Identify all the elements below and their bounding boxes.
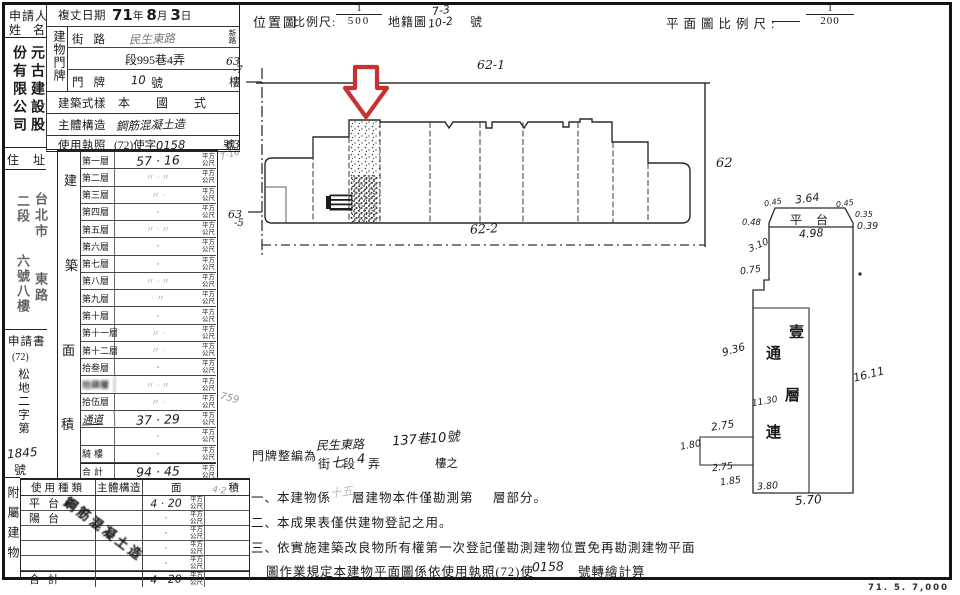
- structure-row: 主體構造 鋼筋混凝土造: [47, 114, 239, 136]
- plan-char-1: 壹: [789, 321, 804, 342]
- floor-row: ·平方公尺: [80, 428, 216, 445]
- unit-label: 平方公尺: [201, 188, 216, 202]
- floor-row: 拾肆層〃 · 〃平方公尺: [80, 376, 216, 393]
- floor-row: 第五層〃 · 〃平方公尺: [80, 221, 216, 238]
- floor-row: 第十二層〃 ·平方公尺: [80, 342, 216, 359]
- floor-row: 第四層·平方公尺: [80, 204, 216, 221]
- residence-label: 住址: [7, 151, 59, 168]
- divider: [3, 477, 20, 478]
- passage-label: 通道: [80, 410, 116, 427]
- floor-value: 〃 ·: [115, 189, 201, 201]
- divider: [4, 37, 46, 38]
- annex-structure-header: 主體構造: [96, 480, 143, 495]
- address-block-label: 建物門牌: [51, 30, 68, 88]
- divider: [4, 169, 46, 170]
- floor-of-word: 樓之: [435, 455, 458, 471]
- unit-label: 平方公尺: [201, 309, 216, 323]
- scale-label: 比例尺:: [293, 13, 336, 30]
- application-doc-label: 申請書: [8, 333, 46, 349]
- unit-label: 平方公尺: [201, 412, 216, 426]
- unit-label: 平方公尺: [201, 343, 216, 357]
- floor-value: 〃 ·: [115, 327, 201, 339]
- applicant-name-column-right: 元古建設股: [26, 45, 46, 157]
- address-label-cell: 建物門牌: [47, 27, 68, 91]
- street-side-note: 新路: [227, 29, 238, 47]
- floor-value: 〃 · 〃: [115, 379, 201, 391]
- street-value: 民生東路: [129, 30, 176, 48]
- day-suffix: 日: [181, 8, 192, 23]
- door-number: 10: [131, 72, 146, 87]
- annex-area: ·: [143, 528, 189, 538]
- note1-part-c: 層部分。: [493, 487, 547, 506]
- applicant-name-column-left: 份有限公司: [8, 45, 28, 157]
- floor-label: [80, 428, 115, 444]
- dim-498: 4.98: [799, 226, 824, 241]
- floor-label: 拾肆層: [80, 376, 115, 392]
- floor-label: 第十層: [80, 307, 115, 323]
- floor-label: 第三層: [80, 187, 115, 203]
- residence-address-right: 台北市 東路: [31, 192, 50, 322]
- unit-label: 平方公尺: [189, 511, 204, 525]
- divider: [3, 329, 47, 330]
- building-address-block: 建物門牌 街路 民生東路 新路 段995巷4弄 門牌 10 號 樓: [47, 27, 239, 92]
- floor-row: 第六層·平方公尺: [80, 238, 216, 255]
- plan-scale-label: 平面圖比例尺:: [666, 13, 779, 32]
- floor-label: 第七層: [80, 256, 115, 272]
- floor-value: ·: [115, 311, 201, 321]
- annex-area: ·: [143, 513, 189, 523]
- note3-continued: 圖作業規定本建物平面圖係依使用執照(72)使: [266, 561, 534, 580]
- floor-label: 第九層: [80, 290, 115, 306]
- building-survey-document: 申請人 姓名 元古建設股 份有限公司 住址 台北市 東路 二段 六號八樓 申請書…: [0, 0, 960, 595]
- floor-value: ·: [115, 259, 201, 269]
- area-label-char2: 築: [65, 255, 78, 274]
- dim-048: 0.48: [742, 218, 761, 228]
- plan-scale-denominator: 200: [820, 15, 840, 27]
- month-suffix: 月: [157, 8, 168, 23]
- plan-char-2: 通: [766, 342, 781, 363]
- alley-word: 弄: [368, 455, 380, 472]
- annex-margin-scribble: 4·2: [211, 485, 227, 497]
- note1-part-a: 本建物係: [277, 487, 331, 506]
- unit-label: 平方公尺: [189, 526, 204, 540]
- dim-039: 0.39: [857, 221, 878, 232]
- application-doc-number: 1845: [6, 445, 38, 462]
- floor-value: 〃 · 〃: [115, 275, 201, 287]
- unit-label: 平方公尺: [201, 170, 216, 184]
- floor-row: 第一層57 · 16平方公尺: [80, 152, 216, 169]
- cadastre-unit: 號: [470, 13, 482, 30]
- floor-value: · 〃: [115, 292, 201, 304]
- application-doc-suffix: 號: [14, 461, 26, 478]
- plan-scale-fraction: 1 200: [806, 2, 854, 27]
- floor-row: 第十一層〃 ·平方公尺: [80, 325, 216, 342]
- floor-row: 騎樓·平方公尺: [80, 446, 216, 463]
- survey-date-month: 8: [146, 6, 156, 24]
- annex-area-header: 面 積: [143, 480, 249, 495]
- unit-label: 平方公尺: [201, 257, 216, 271]
- note3-tail: 號轉繪計算: [578, 561, 646, 580]
- note2-text: 本成果表僅供建物登記之用。: [277, 512, 453, 531]
- unit-label: 平方公尺: [201, 395, 216, 409]
- floor-value: 〃 ·: [115, 344, 201, 356]
- floor-label: 第一層: [80, 152, 115, 168]
- print-code: 71. 5. 7,000: [868, 583, 949, 593]
- unit-label: 平方公尺: [201, 360, 216, 374]
- residence-address-left: 二段 六號八樓: [13, 194, 32, 328]
- area-label-char1: 建: [64, 170, 77, 189]
- note2-number: 二、: [251, 512, 278, 531]
- unit-label: 平方公尺: [201, 239, 216, 253]
- application-doc-series: 松地二字第: [15, 368, 31, 450]
- street-word: 街: [318, 455, 330, 472]
- highlighted-unit-dense-fill: [351, 175, 378, 223]
- street-row: 街路 民生東路 新路: [67, 27, 239, 48]
- door-row: 門牌 10 號 樓: [67, 70, 239, 91]
- floor-label: 第六層: [80, 238, 115, 254]
- dim-035: 0.35: [855, 210, 873, 219]
- note3-license-number-hand: 0158: [532, 558, 564, 574]
- lane-value: 段995巷4弄: [125, 51, 185, 68]
- annex-box-end: [326, 196, 331, 209]
- red-arrow-icon: [345, 67, 387, 117]
- plan-dot: [858, 272, 861, 275]
- floor-label: 第五層: [80, 221, 115, 237]
- survey-date-day: 3: [170, 6, 180, 24]
- alley-number-hand: 4: [357, 452, 366, 467]
- floor-label: 第十一層: [80, 325, 115, 341]
- renumbered-address-label: 門牌整編為: [252, 447, 317, 464]
- floor-value: 〃 ·: [115, 396, 201, 408]
- divider: [4, 147, 47, 148]
- parcel-label-62: 62: [716, 156, 733, 171]
- area-label-strip: 建 築 面 積: [58, 152, 81, 479]
- style-label: 建築式樣: [58, 95, 106, 111]
- passage-value: 37 · 29: [115, 410, 201, 428]
- unit-label: 平方公尺: [201, 326, 216, 340]
- floor-row: 拾叁層·平方公尺: [80, 359, 216, 376]
- floor-value: 〃 · 〃: [115, 223, 201, 235]
- floor-value: ·: [115, 241, 201, 251]
- lane-row: 段995巷4弄: [67, 48, 239, 69]
- annex-row: 平台4 · 20平方公尺: [21, 496, 249, 511]
- dim-570: 5.70: [795, 492, 823, 508]
- note3-text: 依實施建築改良物所有權第一次登記僅勘測建物位置免再勘測建物平面: [277, 537, 696, 556]
- style-row: 建築式樣 本國式: [47, 92, 239, 114]
- annex-area: ·: [143, 558, 189, 568]
- annex-total-value: 4 · 20: [143, 572, 189, 587]
- platform-label: 平台: [790, 211, 842, 228]
- scale-numerator: 1: [356, 2, 362, 14]
- arcade-label: 騎樓: [80, 446, 115, 462]
- floor-row: 第九層· 〃平方公尺: [80, 290, 216, 307]
- survey-date-row: 複丈日期 71 年 8 月 3 日: [47, 4, 239, 27]
- door-label: 門牌: [72, 74, 115, 90]
- parcel-label-63-5b: -5: [234, 218, 244, 229]
- application-doc-paren: (72): [12, 352, 29, 363]
- floor-area-table: 建 築 面 積 第一層57 · 16平方公尺 第二層〃 · 〃平方公尺 第三層〃…: [57, 150, 218, 480]
- location-map-title: 位置圖: [253, 12, 298, 31]
- floor-label: 第二層: [80, 169, 115, 185]
- plan-scale-numerator: 1: [827, 2, 833, 14]
- annex-row: 陽台·平方公尺: [21, 511, 249, 526]
- floor-value: ·: [115, 362, 201, 372]
- note1-part-b: 層建物本件僅勘測第: [352, 487, 474, 506]
- annex-hatched-box: [330, 195, 352, 210]
- unit-label: 平方公尺: [189, 556, 204, 570]
- structure-value: 鋼筋混凝土造: [116, 115, 186, 133]
- floor-row: 第七層·平方公尺: [80, 256, 216, 273]
- survey-date-label: 複丈日期: [58, 7, 106, 23]
- unit-label: 平方公尺: [189, 572, 204, 586]
- parcel-label-62-1: 62-1: [477, 57, 505, 72]
- unit-label: 平方公尺: [189, 496, 204, 510]
- parcel-label-63-7b: -7: [233, 65, 243, 76]
- floor-value: 〃 · 〃: [115, 171, 201, 183]
- year-suffix: 年: [133, 8, 144, 23]
- style-value: 本國式: [118, 94, 232, 111]
- annex-area: ·: [143, 543, 189, 553]
- unit-label: 平方公尺: [189, 541, 204, 555]
- area-label-char4: 積: [61, 414, 74, 433]
- floor-row: 通道37 · 29平方公尺: [80, 411, 216, 428]
- structure-label: 主體構造: [58, 117, 106, 133]
- building-info-form: 複丈日期 71 年 8 月 3 日 建物門牌 街路 民生東路 新路 段995巷4…: [46, 4, 240, 152]
- floor-row: 第三層〃 ·平方公尺: [80, 187, 216, 204]
- dim-380: 3.80: [757, 480, 779, 492]
- unit-label: 平方公尺: [201, 222, 216, 236]
- floor-value: ·: [115, 207, 201, 217]
- dash-line: [772, 21, 800, 22]
- annex-total-row: 合計4 · 20平方公尺: [21, 571, 249, 586]
- unit-label: 平方公尺: [201, 205, 216, 219]
- floor-label: 拾叁層: [80, 359, 115, 375]
- section-word: 段: [343, 455, 355, 472]
- unit-label: 平方公尺: [201, 274, 216, 288]
- floor-value: 57 · 16: [115, 151, 201, 169]
- floor-label: 第四層: [80, 204, 115, 220]
- plan-char-4: 連: [766, 421, 781, 442]
- area-header-char2: 積: [229, 480, 240, 495]
- door-unit: 號: [151, 74, 163, 91]
- parcel-label-62-2: 62-2: [470, 220, 499, 236]
- unit-label: 平方公尺: [201, 465, 216, 479]
- street-label: 街路: [72, 31, 115, 47]
- floor-label: 第十二層: [80, 342, 115, 358]
- annex-type-header: 使用種類: [21, 480, 96, 495]
- floor-row: 拾伍層〃 ·平方公尺: [80, 394, 216, 411]
- floor-value: ·: [115, 431, 201, 441]
- plan-char-3: 層: [785, 384, 800, 405]
- note1-hand-floors: 十五: [329, 482, 354, 501]
- arcade-value: ·: [115, 449, 201, 459]
- survey-date-year: 71: [112, 6, 133, 24]
- floor-label: 第八層: [80, 273, 115, 289]
- unit-label: 平方公尺: [201, 429, 216, 443]
- unit-label: 平方公尺: [201, 291, 216, 305]
- scale-denominator: 500: [348, 15, 371, 27]
- unit-label: 平方公尺: [201, 447, 216, 461]
- note3-number: 三、: [251, 537, 278, 556]
- cadastre-label: 地籍圖: [388, 13, 427, 30]
- area-label-char3: 面: [62, 340, 75, 359]
- annex-area: 4 · 20: [143, 496, 189, 511]
- location-scale-fraction: 1 500: [336, 2, 382, 27]
- floor-label: 拾伍層: [80, 394, 115, 410]
- unit-label: 平方公尺: [201, 153, 216, 167]
- floor-row: 第十層·平方公尺: [80, 307, 216, 324]
- area-header-char1: 面: [171, 480, 182, 495]
- floor-row: 第二層〃 · 〃平方公尺: [80, 169, 216, 186]
- annex-total-label: 合計: [21, 572, 96, 586]
- unit-label: 平方公尺: [201, 378, 216, 392]
- floor-row: 第八層〃 · 〃平方公尺: [80, 273, 216, 290]
- note1-number: 一、: [251, 487, 278, 506]
